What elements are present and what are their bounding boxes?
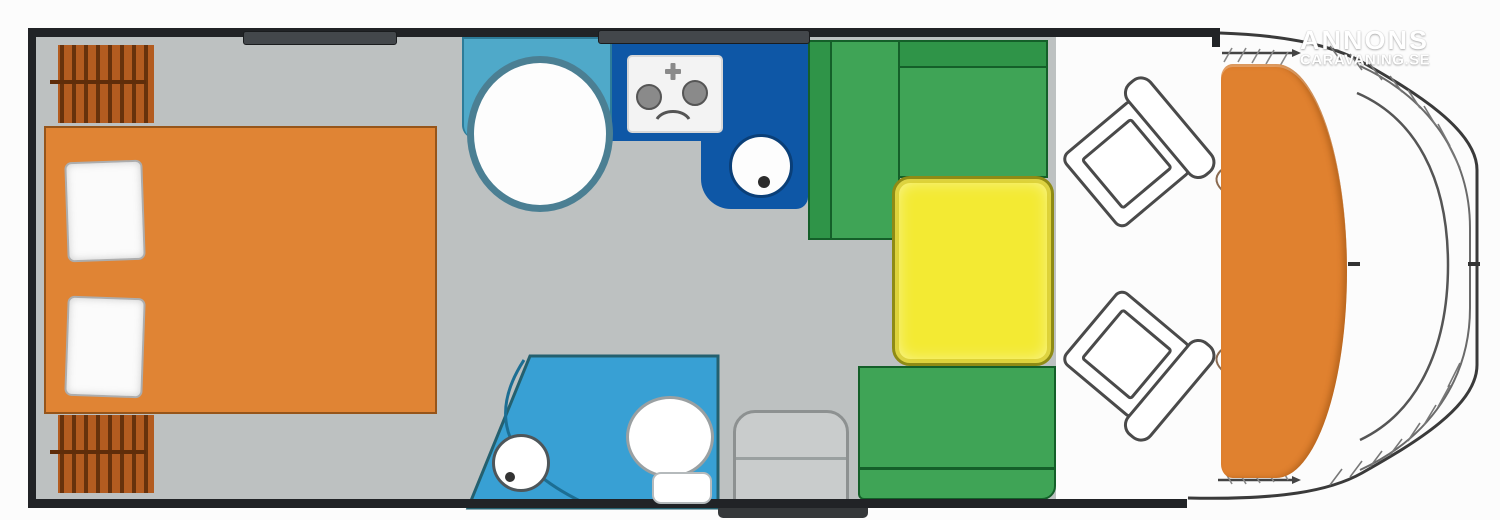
watermark-line1: ANNONS	[1300, 28, 1430, 54]
sink-drain	[758, 176, 770, 188]
washbasin-drain	[505, 472, 515, 482]
sofa-seat-top	[898, 66, 1048, 178]
window-top-left	[243, 31, 397, 45]
hob-details	[629, 57, 717, 127]
burner-left	[637, 85, 661, 109]
wall-left	[28, 28, 36, 508]
centre-tick-outer	[1468, 262, 1480, 266]
sofa-backrest-left	[808, 40, 832, 240]
bench-seat	[858, 366, 1056, 500]
hob-knob-cross-v	[671, 63, 676, 80]
wardrobe-top	[36, 38, 170, 130]
washbasin	[492, 434, 550, 492]
dinette-table	[892, 176, 1054, 366]
window-top-kitchen	[598, 30, 810, 44]
motorhome-floorplan: ANNONS CARAVANING.SE	[0, 0, 1500, 520]
watermark-line2: CARAVANING.SE	[1300, 53, 1430, 67]
sofa-backrest-top	[898, 40, 1048, 68]
wall-bottom	[28, 499, 1187, 508]
burner-right	[683, 81, 707, 105]
shower-tray	[467, 56, 613, 212]
pillow-2	[64, 296, 145, 399]
kitchen-sink	[729, 134, 793, 198]
toilet-base	[652, 472, 712, 504]
sofa-seat-left	[830, 40, 900, 240]
wardrobe-rail	[50, 450, 146, 454]
pillow-1	[64, 160, 145, 263]
hob-icon	[627, 55, 723, 133]
step-tread-line	[736, 457, 846, 460]
hob-handle	[657, 112, 689, 120]
wardrobe-bottom	[36, 408, 170, 500]
watermark: ANNONS CARAVANING.SE	[1300, 28, 1430, 67]
toilet-bowl	[626, 396, 714, 478]
cab-bottom-arrow	[1292, 476, 1301, 484]
wall-top-end-stub	[1212, 28, 1220, 47]
wardrobe-rail	[50, 80, 146, 84]
bench-front-edge	[860, 467, 1054, 470]
windscreen	[1357, 93, 1448, 440]
entry-step-inside	[733, 410, 849, 502]
centre-tick-inner	[1348, 262, 1360, 266]
